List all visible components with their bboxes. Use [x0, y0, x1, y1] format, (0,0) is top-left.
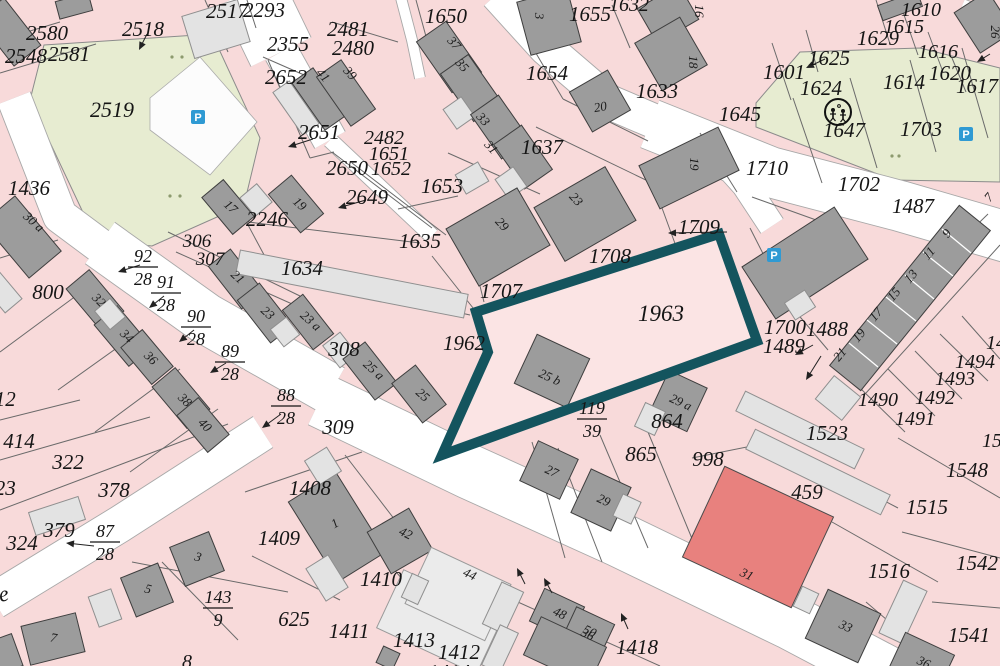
tree-dot — [890, 154, 893, 157]
fraction-bottom: 28 — [277, 408, 295, 428]
building-number-label: 18 — [686, 56, 701, 70]
parcel-number-label: 1542 — [956, 551, 999, 575]
parcel-number-label: 1488 — [806, 317, 849, 341]
parcel-number-label: 2355 — [267, 32, 309, 56]
parcel-number-label: 625 — [278, 607, 310, 631]
parcel-number-label: 1541 — [948, 623, 990, 647]
parking-icon: P — [767, 248, 781, 262]
parcel-number-label: 1410 — [360, 567, 403, 591]
parcel-number-label: 1645 — [719, 102, 761, 126]
fraction-bottom: 28 — [157, 295, 175, 315]
parcel-number-label: 1637 — [521, 135, 565, 159]
svg-text:P: P — [770, 250, 777, 262]
parcel-number-label: 1709 — [678, 215, 721, 239]
parcel-number-label: 1625 — [808, 46, 850, 70]
parcel-number-label: 998 — [692, 447, 724, 471]
parcel-number-label: 1653 — [421, 174, 463, 198]
parcel-number-label: 2293 — [243, 0, 285, 22]
svg-text:P: P — [194, 112, 201, 124]
fraction-bottom: 39 — [582, 421, 601, 441]
building-number-label: 19 — [687, 158, 702, 172]
parcel-number-label: 864 — [651, 409, 683, 433]
fraction-top: 90 — [187, 306, 205, 326]
parcel-number-label: 1617 — [956, 74, 1000, 98]
parcel-number-label: 2246 — [246, 207, 289, 231]
parcel-number-label: 378 — [97, 478, 130, 502]
parcel-number-label: 2581 — [48, 42, 90, 66]
fraction-bottom: 28 — [96, 544, 114, 564]
svg-text:P: P — [962, 129, 969, 141]
parcel-number-label: 8 — [182, 651, 192, 666]
parcel-number-label: 1436 — [8, 176, 51, 200]
parcel-number-label: 1963 — [638, 301, 684, 326]
parcel-number-label: 1616 — [918, 41, 958, 63]
parcel-number-label: 1629 — [857, 26, 900, 50]
tree-dot — [170, 55, 173, 58]
parcel-number-label: 1652 — [371, 158, 411, 180]
parcel-number-label: 1614 — [883, 70, 926, 94]
parcel-number-label: 1414 — [428, 660, 471, 666]
tree-dot — [168, 194, 171, 197]
parcel-number-label: 1490 — [858, 389, 898, 411]
fraction-top: 92 — [134, 246, 152, 266]
map-viewport[interactable]: 2580254825812518251722932355248124801650… — [0, 0, 1000, 666]
parcel-number-label: 1624 — [800, 76, 843, 100]
parcel-number-label: 2650 — [326, 156, 369, 180]
fraction-top: 119 — [579, 398, 605, 418]
parcel-number-label: 1655 — [569, 2, 611, 26]
parcel-number-label: 1635 — [399, 229, 441, 253]
parcel-number-label: 2518 — [122, 17, 165, 41]
fraction-bottom: 28 — [187, 329, 205, 349]
parcel-number-label: 412 — [0, 387, 16, 411]
parcel-number-label: 1710 — [746, 156, 789, 180]
parcel-number-label: 307 — [195, 249, 226, 270]
parcel-number-label: 2651 — [298, 120, 340, 144]
parcel-number-label: 1515 — [906, 495, 948, 519]
parcel-number-label: 1409 — [258, 526, 301, 550]
parcel-number-label: 414 — [3, 429, 35, 453]
parcel-number-label: 865 — [625, 442, 657, 466]
parcel-number-label: 1962 — [443, 331, 486, 355]
parcel-number-label: 2652 — [265, 65, 308, 89]
fraction-top: 87 — [96, 521, 115, 541]
parcel-number-label: 322 — [51, 450, 84, 474]
building-number-label: 3 — [532, 12, 547, 20]
parcel-number-label: 1487 — [892, 194, 936, 218]
fraction-top: 89 — [221, 341, 239, 361]
parcel-number-label: 1418 — [616, 635, 659, 659]
parcel-number-label: 1495 — [986, 332, 1000, 354]
parcel-number-label: 1703 — [900, 117, 942, 141]
parcel-number-label: 1548 — [946, 458, 989, 482]
tree-dot — [178, 194, 181, 197]
fraction-bottom: 28 — [221, 364, 239, 384]
parcel-number-label: 1707 — [480, 279, 524, 303]
parcel-number-label: 1650 — [425, 4, 468, 28]
parcel-number-label: 2649 — [346, 185, 389, 209]
parcel-number-label: 1413 — [393, 628, 435, 652]
parcel-number-label: 1632 — [609, 0, 649, 16]
parcel-number-label: 154 — [982, 430, 1000, 452]
parcel-number-label: 1516 — [868, 559, 911, 583]
parcel-number-label: 323 — [0, 476, 16, 500]
fraction-top: 143 — [205, 587, 232, 607]
parcel-number-label: 1492 — [915, 387, 955, 409]
parcel-number-label: 1523 — [806, 421, 848, 445]
parcel-number-label: 1708 — [589, 244, 632, 268]
parcel-number-label: 459 — [791, 480, 823, 504]
parcel-number-label: 2480 — [332, 36, 375, 60]
parking-icon: P — [191, 110, 205, 124]
parcel-number-label: 1601 — [763, 60, 805, 84]
building-number-label: 16 — [692, 5, 707, 19]
parcel-number-label: 2519 — [90, 97, 134, 122]
fraction-bottom: 9 — [214, 610, 223, 630]
parcel-number-label: 1494 — [955, 351, 995, 373]
parking-icon: P — [959, 127, 973, 141]
parcel-number-label: 1408 — [289, 476, 332, 500]
parcel-number-label: 1491 — [895, 408, 935, 430]
parcel-number-label: 324 — [5, 531, 38, 555]
cadastral-map-canvas[interactable]: 2580254825812518251722932355248124801650… — [0, 0, 1000, 666]
parcel-number-label: 1654 — [526, 61, 569, 85]
tree-dot — [180, 55, 183, 58]
parcel-number-label: 379 — [42, 518, 75, 542]
parcel-number-label: 800 — [32, 280, 64, 304]
parcel-number-label: 1634 — [281, 256, 324, 280]
fraction-top: 91 — [157, 272, 175, 292]
parcel-number-label: 309 — [321, 415, 354, 439]
tree-dot — [897, 154, 900, 157]
parcel-number-label: 1489 — [763, 334, 806, 358]
fraction-bottom: 28 — [134, 269, 152, 289]
parcel-number-label: 1411 — [329, 619, 369, 643]
parcel-number-label: 308 — [327, 337, 360, 361]
parcel-number-label: 2548 — [5, 44, 48, 68]
building-number-label: 26 — [988, 26, 1000, 40]
parcel-number-label: 1633 — [636, 79, 678, 103]
fraction-top: 88 — [277, 385, 295, 405]
parcel-number-label: 1702 — [838, 172, 881, 196]
